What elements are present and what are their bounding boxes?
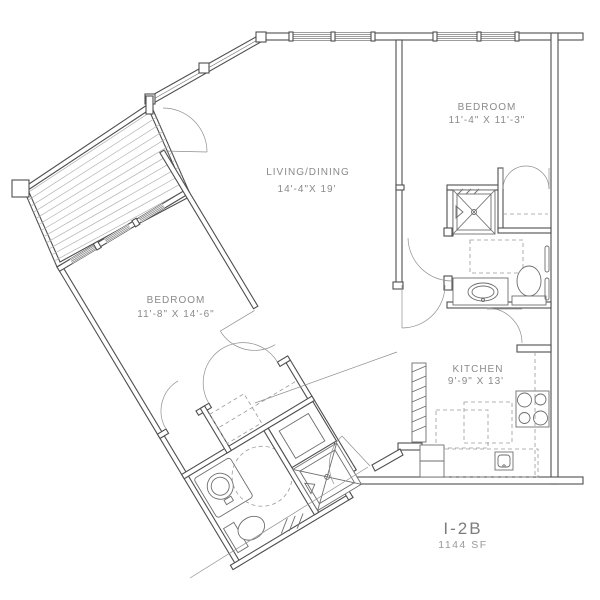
living-label: LIVING/DINING [266,167,350,178]
range [516,391,549,427]
bedroom1-door-arc [220,310,275,365]
diagonal-window-wall [145,32,266,114]
right-wall [551,33,558,484]
shower-2 [453,189,495,234]
bedroom1-windows [69,203,165,265]
unit-area: 1144 SF [438,539,487,551]
pantry-cabinet [412,363,426,442]
kitchen-door-arc [487,308,522,343]
deck-door-arc [163,108,207,152]
bottom-wall [345,477,583,484]
unit-label: I-2B [443,519,482,538]
bedroom1-wing [30,150,368,569]
toilet2-bowl [517,266,541,296]
island-outline-1 [436,410,488,448]
floor-plan-drawing: BEDROOM 11'-4" X 11'-3" LIVING/DINING 14… [0,0,600,600]
bath2-door-arc [408,238,452,281]
bedroom2-label: BEDROOM [458,102,517,113]
closet2-bifold-right [526,166,549,189]
grab-bar-1 [545,246,549,272]
floor-plan-page: BEDROOM 11'-4" X 11'-3" LIVING/DINING 14… [0,0,600,600]
entry-diagonal-wall [372,449,403,471]
kitchen-dims: 9'-9" X 13' [448,376,504,387]
closet2-bifold-left [503,166,526,189]
closet-door-arc-right [223,328,278,383]
kitchen-label: KITCHEN [453,364,504,375]
bedroom1-label: BEDROOM [147,295,206,306]
closet-door-arc-left [188,348,243,403]
bedroom1-dims: 11'-8" X 14'-6" [137,309,214,320]
living-bedroom2-wall [396,40,402,283]
deck-post [12,180,29,197]
living-dims: 14'-4"X 19' [278,184,337,195]
kitchen-sink [495,452,513,470]
wing-right-wall [160,150,258,309]
bedroom2-dims: 11'-4" X 11'-3" [449,115,526,126]
hall-door-arc [402,285,445,328]
toilet2-tank [512,296,546,305]
